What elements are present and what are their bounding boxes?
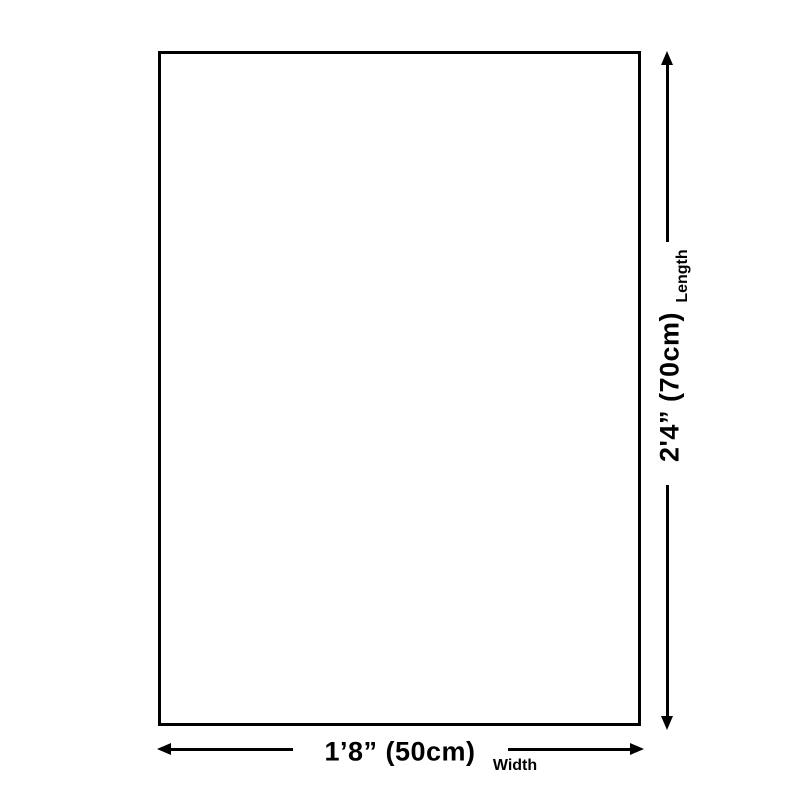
length-measurement-value: 2'4” (70cm) <box>655 312 686 462</box>
width-dimension-line-right <box>508 748 632 751</box>
width-axis-label: Width <box>493 757 537 775</box>
dimension-diagram: Length 2'4” (70cm) 1’8” (50cm) Width <box>0 0 800 800</box>
width-dimension-line-left <box>169 748 293 751</box>
length-axis-label: Length <box>674 249 692 302</box>
arrow-right-icon <box>630 743 644 755</box>
product-outline-rectangle <box>158 51 641 726</box>
width-measurement-value: 1’8” (50cm) <box>324 737 475 768</box>
length-dimension-line-top <box>666 63 669 242</box>
length-dimension-line-bottom <box>666 485 669 718</box>
arrow-down-icon <box>661 716 673 730</box>
